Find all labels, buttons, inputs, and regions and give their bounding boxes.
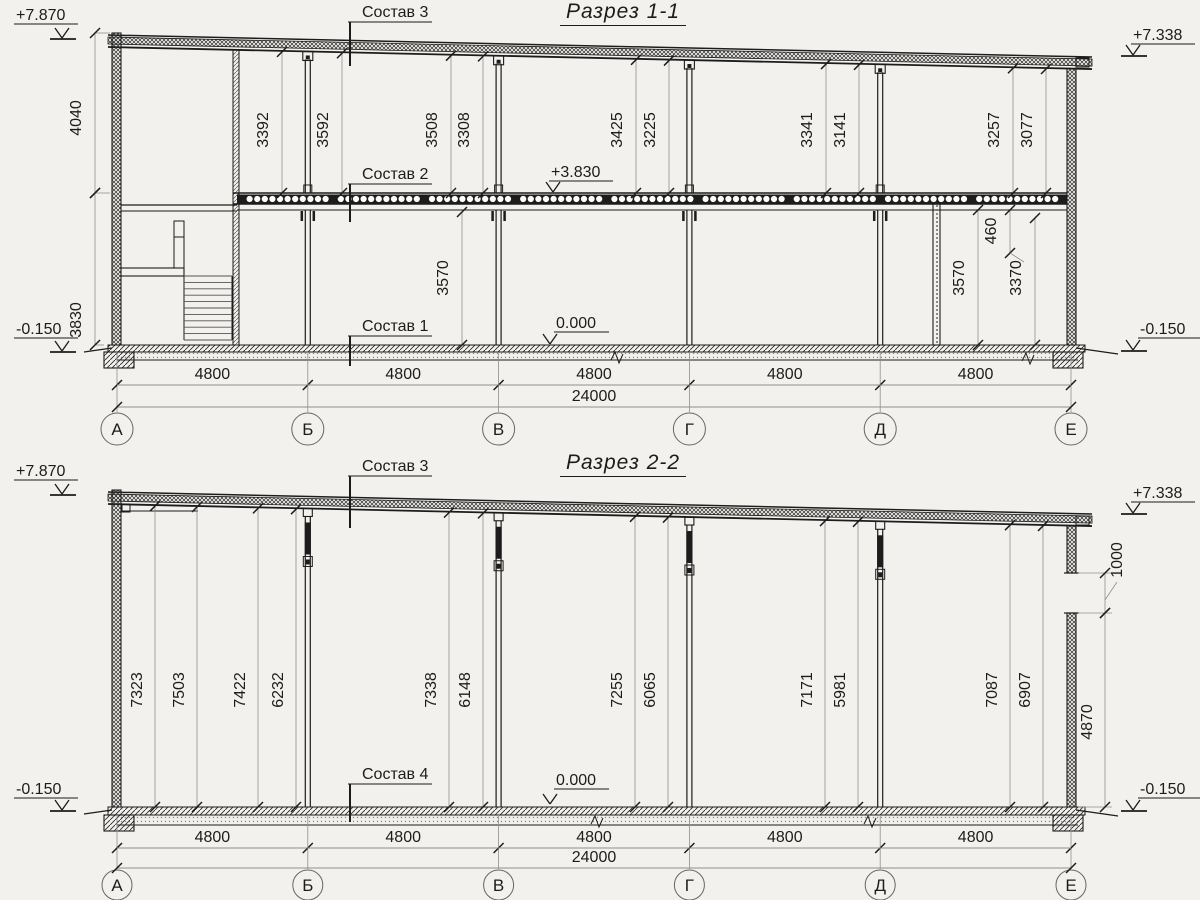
axis-label: Г <box>685 420 694 439</box>
axis-label: А <box>111 876 123 895</box>
slab-void-circle <box>908 196 914 202</box>
dim-label: 5981 <box>832 672 849 708</box>
section-2-2-title: Разрез 2-2 <box>560 451 686 477</box>
axis-label: Е <box>1065 420 1076 439</box>
slab-void-circle <box>832 196 838 202</box>
slab-void-circle <box>353 196 359 202</box>
slab-void-circle <box>619 196 625 202</box>
slab-void-circle <box>543 196 549 202</box>
wall-axis-e-upper <box>1067 526 1076 573</box>
footing-e <box>1053 352 1083 368</box>
elevation-mark: 0.000 <box>556 772 596 789</box>
dim-label: 3570 <box>435 260 452 296</box>
slab-void-circle <box>490 196 496 202</box>
axis-label: Д <box>874 420 886 439</box>
slab-void-circle <box>551 196 557 202</box>
column-cap <box>685 517 694 525</box>
wall-axis-a <box>112 33 121 345</box>
slab-void-circle <box>528 196 534 202</box>
column-splice-core <box>687 568 691 573</box>
elevation-arrow <box>55 341 62 351</box>
slab-void-circle <box>361 196 367 202</box>
dim-leader <box>1105 582 1117 600</box>
dim-label: 3308 <box>456 112 473 148</box>
partition-wall <box>933 204 940 345</box>
column-cap <box>494 513 503 521</box>
column-cap-core <box>878 68 882 72</box>
slab-void-circle <box>763 196 769 202</box>
axis-label: Г <box>685 876 694 895</box>
slab-void-circle <box>573 196 579 202</box>
slab-void-circle <box>292 196 298 202</box>
slab-void-circle <box>931 196 937 202</box>
elevation-arrow <box>62 28 69 38</box>
slab-void-circle <box>999 196 1005 202</box>
elevation-arrow <box>55 28 62 38</box>
dim-label: 7255 <box>609 672 626 708</box>
slab-void-circle <box>368 196 374 202</box>
footing-a <box>104 352 134 368</box>
slab-void-circle <box>741 196 747 202</box>
slab-void-circle <box>923 196 929 202</box>
slab-void-circle <box>725 196 731 202</box>
slab-void-circle <box>429 196 435 202</box>
slab-void-circle <box>300 196 306 202</box>
column-splice-core <box>306 559 310 564</box>
bay-dim: 4800 <box>958 829 994 846</box>
slab-void-circle <box>718 196 724 202</box>
elevation-mark: 0.000 <box>556 315 596 332</box>
slab-void-circle <box>839 196 845 202</box>
slab-void-circle <box>938 196 944 202</box>
axis-label: Е <box>1065 876 1076 895</box>
slab-void-circle <box>976 196 982 202</box>
stair-landing <box>121 268 184 276</box>
slab-void-circle <box>794 196 800 202</box>
elevation-arrow <box>546 182 553 192</box>
dim-label: 3508 <box>424 112 441 148</box>
elevation-arrow <box>1126 340 1133 350</box>
column-splice-core <box>878 572 882 577</box>
elevation-mark: -0.150 <box>1140 321 1185 338</box>
elevation-arrow <box>550 794 557 804</box>
slab-void-circle <box>703 196 709 202</box>
slab-void-circle <box>1052 196 1058 202</box>
dim-label: 1000 <box>1109 542 1126 578</box>
dim-label: 4870 <box>1079 704 1096 740</box>
slab-void-circle <box>672 196 678 202</box>
footing-a <box>104 815 134 831</box>
elevation-arrow <box>550 334 557 344</box>
slab-void-circle <box>733 196 739 202</box>
bay-dim: 4800 <box>385 829 421 846</box>
bay-dim: 4800 <box>767 366 803 383</box>
dim-label: 6907 <box>1017 672 1034 708</box>
column-splice <box>686 531 692 563</box>
slab-void-circle <box>946 196 952 202</box>
column-cap-core <box>497 60 501 64</box>
slab-void-circle <box>262 196 268 202</box>
bay-dim: 4800 <box>576 366 612 383</box>
elevation-mark: -0.150 <box>16 781 61 798</box>
elevation-arrow <box>1133 503 1140 513</box>
dim-label: 6232 <box>270 672 287 708</box>
elevation-mark: +3.830 <box>551 164 600 181</box>
slab-void-circle <box>307 196 313 202</box>
slab-void-circle <box>915 196 921 202</box>
slab-void-circle <box>323 196 329 202</box>
bay-dim: 4800 <box>576 829 612 846</box>
dim-label: 6148 <box>457 672 474 708</box>
column-splice <box>496 527 502 559</box>
slab-void-circle <box>687 196 693 202</box>
elevation-mark: -0.150 <box>1140 781 1185 798</box>
dim-label: 7323 <box>129 672 146 708</box>
slab-void-circle <box>399 196 405 202</box>
footing-e <box>1053 815 1083 831</box>
slab-void-circle <box>779 196 785 202</box>
roof-insulation-band <box>108 37 1092 66</box>
slab-void-circle <box>710 196 716 202</box>
ground-underlayer <box>117 352 1078 360</box>
dim-label: 7171 <box>799 672 816 708</box>
bay-dim: 4800 <box>767 829 803 846</box>
elevation-mark: +7.338 <box>1133 485 1182 502</box>
elevation-arrow <box>1126 800 1133 810</box>
roof-insulation-band <box>108 494 1092 523</box>
slab-void-circle <box>1029 196 1035 202</box>
bay-dim: 4800 <box>195 829 231 846</box>
slab-void-circle <box>847 196 853 202</box>
column-cap-core <box>306 55 310 59</box>
slab-void-circle <box>649 196 655 202</box>
slab-void-circle <box>459 196 465 202</box>
dim-label: 460 <box>983 218 1000 245</box>
slab-void-circle <box>984 196 990 202</box>
composition-label: Состав 4 <box>362 766 428 783</box>
dim-label: 3225 <box>642 112 659 148</box>
slab-void-circle <box>900 196 906 202</box>
slab-void-circle <box>452 196 458 202</box>
slab-void-circle <box>535 196 541 202</box>
axis-label: А <box>111 420 123 439</box>
ground-slab <box>108 345 1085 352</box>
slab-void-circle <box>581 196 587 202</box>
column-splice <box>305 522 311 554</box>
elevation-arrow <box>553 182 560 192</box>
slab-void-circle <box>376 196 382 202</box>
dim-label: 7422 <box>232 672 249 708</box>
slab-void-circle <box>285 196 291 202</box>
dim-label: 3257 <box>986 112 1003 148</box>
slab-void-circle <box>247 196 253 202</box>
slab-void-circle <box>391 196 397 202</box>
slab-void-circle <box>801 196 807 202</box>
elevation-mark: -0.150 <box>16 321 61 338</box>
slab-void-circle <box>414 196 420 202</box>
column-splice-core <box>497 564 501 569</box>
drawing-sheet: 4040383033923592350833083425322533413141… <box>0 0 1200 900</box>
axis-label: В <box>493 876 504 895</box>
slab-void-circle <box>589 196 595 202</box>
wall-axis-a <box>112 490 121 807</box>
slab-void-circle <box>406 196 412 202</box>
slab-void-circle <box>657 196 663 202</box>
elevation-arrow <box>62 800 69 810</box>
dim-label: 7503 <box>171 672 188 708</box>
slab-void-circle <box>497 196 503 202</box>
elevation-arrow <box>1133 800 1140 810</box>
dim-label: 3570 <box>951 260 968 296</box>
column-cap <box>303 508 312 516</box>
slab-void-circle <box>437 196 443 202</box>
composition-label: Состав 2 <box>362 166 428 183</box>
dim-label: 7338 <box>423 672 440 708</box>
slab-void-circle <box>756 196 762 202</box>
dim-label: 3830 <box>68 302 85 338</box>
composition-label: Состав 3 <box>362 458 428 475</box>
bay-dim: 4800 <box>958 366 994 383</box>
elevation-arrow <box>62 484 69 494</box>
slab-void-circle <box>953 196 959 202</box>
slab-void-circle <box>771 196 777 202</box>
total-dim: 24000 <box>572 388 617 405</box>
slab-void-circle <box>862 196 868 202</box>
sections-drawing-canvas: 4040383033923592350833083425322533413141… <box>0 0 1200 900</box>
elevation-arrow <box>62 341 69 351</box>
dim-label: 6065 <box>642 672 659 708</box>
dim-label: 3592 <box>315 112 332 148</box>
slab-void-circle <box>596 196 602 202</box>
slab-void-circle <box>1022 196 1028 202</box>
column-splice <box>877 535 883 567</box>
dim-label: 3341 <box>799 112 816 148</box>
slab-void-circle <box>482 196 488 202</box>
slab-void-circle <box>680 196 686 202</box>
slab-void-circle <box>1045 196 1051 202</box>
slab-void-circle <box>642 196 648 202</box>
elevation-arrow <box>1133 45 1140 55</box>
elevation-arrow <box>543 334 550 344</box>
elevation-mark: +7.870 <box>16 7 65 24</box>
wall-axis-e-lower <box>1067 613 1076 807</box>
column-cap <box>876 521 885 529</box>
slab-void-circle <box>809 196 815 202</box>
dim-label: 3425 <box>609 112 626 148</box>
slab-void-circle <box>467 196 473 202</box>
elevation-mark: +7.338 <box>1133 27 1182 44</box>
slab-void-circle <box>520 196 526 202</box>
axis-label: Д <box>874 876 886 895</box>
slab-void-circle <box>315 196 321 202</box>
slab-void-circle <box>254 196 260 202</box>
axis-label: В <box>493 420 504 439</box>
slab-void-circle <box>870 196 876 202</box>
bay-dim: 4800 <box>195 366 231 383</box>
total-dim: 24000 <box>572 849 617 866</box>
slab-void-circle <box>383 196 389 202</box>
slab-void-circle <box>748 196 754 202</box>
stair-upper-post <box>174 221 184 268</box>
dim-label: 3141 <box>832 112 849 148</box>
elevation-mark: +7.870 <box>16 463 65 480</box>
slab-void-circle <box>505 196 511 202</box>
slab-void-circle <box>961 196 967 202</box>
slab-void-circle <box>566 196 572 202</box>
column-cap-core <box>687 64 691 68</box>
wall-axis-e <box>1067 69 1076 345</box>
elevation-arrow <box>1126 503 1133 513</box>
dim-label: 3077 <box>1019 112 1036 148</box>
elevation-arrow <box>543 794 550 804</box>
slab-void-circle <box>269 196 275 202</box>
elevation-arrow <box>1126 45 1133 55</box>
axis-label: Б <box>302 420 313 439</box>
slab-void-circle <box>991 196 997 202</box>
slab-void-circle <box>634 196 640 202</box>
elevation-arrow <box>55 484 62 494</box>
axis-label: Б <box>302 876 313 895</box>
slab-void-circle <box>558 196 564 202</box>
slab-void-circle <box>611 196 617 202</box>
composition-label: Состав 3 <box>362 4 428 21</box>
elevation-arrow <box>55 800 62 810</box>
slab-void-circle <box>824 196 830 202</box>
bay-dim: 4800 <box>385 366 421 383</box>
dim-label: 3370 <box>1008 260 1025 296</box>
elevation-arrow <box>1133 340 1140 350</box>
section-1-1-title: Разрез 1-1 <box>560 0 686 26</box>
composition-label: Состав 1 <box>362 318 428 335</box>
slab-void-circle <box>893 196 899 202</box>
dim-label: 4040 <box>68 100 85 136</box>
slab-void-circle <box>1014 196 1020 202</box>
dim-label: 3392 <box>255 112 272 148</box>
slab-void-circle <box>885 196 891 202</box>
dim-label: 7087 <box>984 672 1001 708</box>
